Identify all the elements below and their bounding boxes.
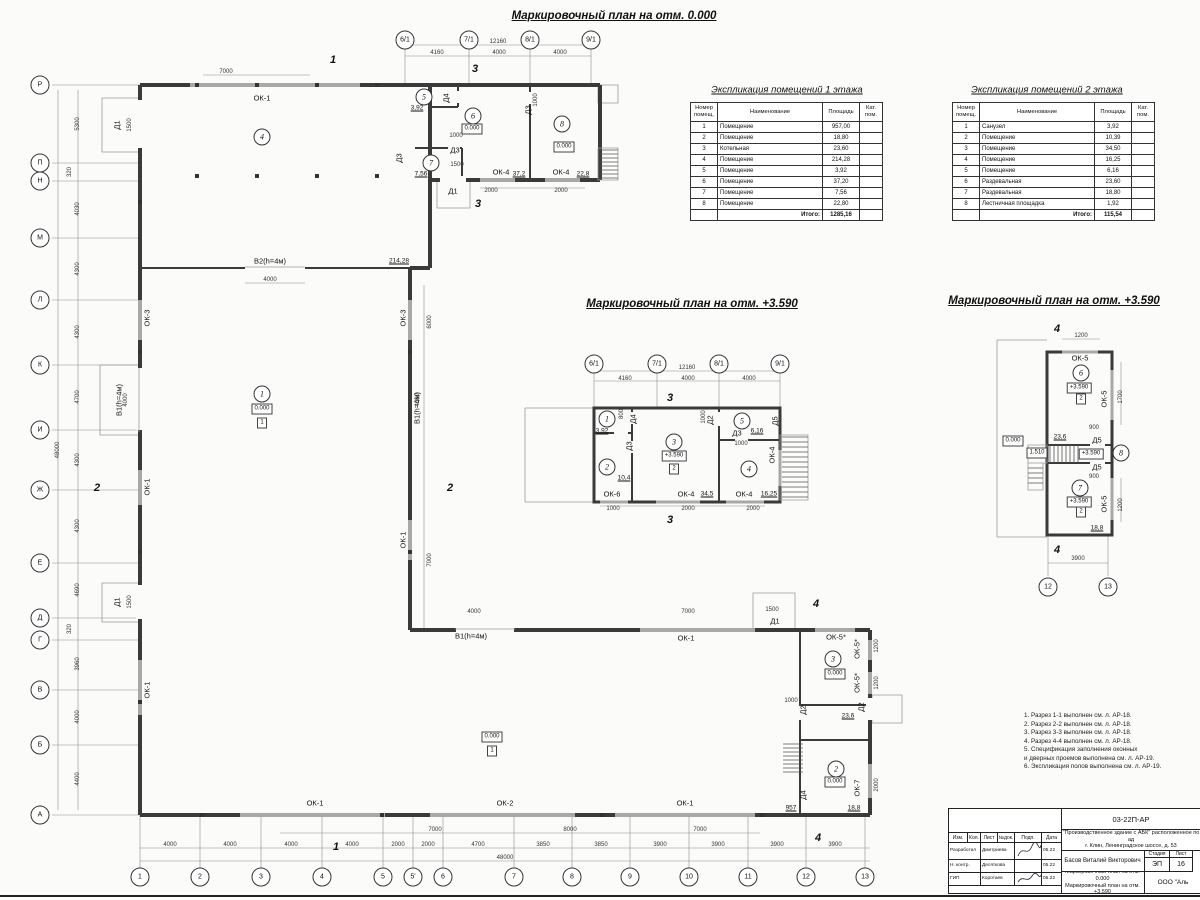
circ-5: 5 xyxy=(734,413,751,430)
dim-4000: 4000 xyxy=(553,50,566,56)
table-cell: 2 xyxy=(691,133,718,144)
table-header: Номер помещ. xyxy=(691,103,718,122)
sq-2: 2 xyxy=(669,464,679,475)
table-cell xyxy=(1132,188,1155,199)
table-cell xyxy=(691,210,718,221)
table-cell xyxy=(1132,155,1155,166)
axis-8: 8 xyxy=(563,868,582,887)
area-18,8: 18,8 xyxy=(848,805,861,812)
lbl-Д1: Д1 xyxy=(113,120,122,129)
axis-6/1: 6/1 xyxy=(396,31,415,50)
dim-48000: 48000 xyxy=(55,442,61,459)
sec-2: 2 xyxy=(94,482,100,494)
area-16,25: 16,25 xyxy=(761,491,777,498)
tb-object-line2: г. Клин, Ленинградское шоссе, д. 53 xyxy=(1085,843,1176,850)
dim-900: 900 xyxy=(1089,425,1099,431)
dim-1500: 1500 xyxy=(765,607,778,613)
table-cell: Помещение xyxy=(718,122,823,133)
dim-4000: 4000 xyxy=(284,842,297,848)
table-cell: 3,92 xyxy=(823,166,860,177)
rooms-table-floor2: Номер помещ.НаименованиеПлощадьКат. пом.… xyxy=(952,102,1155,221)
circ-4: 4 xyxy=(254,129,271,146)
table-cell: Помещение xyxy=(980,133,1095,144)
dim-800: 800 xyxy=(619,409,625,419)
area-957: 957 xyxy=(786,805,797,812)
box-+3.590: +3.590 xyxy=(1067,383,1092,394)
lbl-Д3: Д3 xyxy=(524,105,533,114)
table-cell: Помещение xyxy=(718,133,823,144)
dim-320: 320 xyxy=(67,624,73,634)
axis-8/1: 8/1 xyxy=(521,31,540,50)
box-+3.590: +3.590 xyxy=(1079,449,1104,460)
tb-row-Н. контр.: Н. контр.Десяткова05.22 xyxy=(949,860,1061,873)
sq-2: 2 xyxy=(1076,394,1086,405)
lbl-Д3: Д3 xyxy=(395,153,404,162)
dim-4160: 4160 xyxy=(430,50,443,56)
table-total-row: Итого:1285,16 xyxy=(691,210,883,221)
dim-1200: 1200 xyxy=(1118,498,1124,511)
dim-7000: 7000 xyxy=(219,69,232,75)
lbl-ОК-5: ОК-5 xyxy=(1100,496,1109,513)
area-18,8: 18,8 xyxy=(1091,525,1104,532)
axis-Ж: Ж xyxy=(31,481,50,500)
tb-sheet-value: 16 xyxy=(1170,858,1193,872)
dim-1700: 1700 xyxy=(1118,390,1124,403)
sec-3: 3 xyxy=(472,63,478,75)
area-22,8: 22,8 xyxy=(577,171,590,178)
tb-col-1: Кол. xyxy=(968,833,981,843)
table-cell xyxy=(1132,199,1155,210)
table-cell xyxy=(860,199,883,210)
table-cell: 34,50 xyxy=(1095,144,1132,155)
lbl-Д5: Д5 xyxy=(771,416,780,425)
dim-4400: 4400 xyxy=(75,772,81,785)
lbl-ОК-6: ОК-6 xyxy=(604,490,621,499)
lbl-ОК-1: ОК-1 xyxy=(678,634,695,643)
axis-П: П xyxy=(31,154,50,173)
sq-1: 1 xyxy=(257,418,267,429)
axis-Н: Н xyxy=(31,172,50,191)
area-3,92: 3,92 xyxy=(411,105,424,112)
table-row: 8Лестничная площадка1,92 xyxy=(953,199,1155,210)
dim-4000: 4000 xyxy=(681,376,694,382)
axis-6/1: 6/1 xyxy=(585,355,604,374)
note-item: 2. Разрез 2-2 выполнен см. л. АР-18. xyxy=(1024,721,1200,730)
table-cell: 3 xyxy=(691,144,718,155)
tb-signature xyxy=(1015,860,1042,872)
lbl-Д2: Д2 xyxy=(857,702,866,711)
tb-cell: Дмитриева xyxy=(981,843,1015,859)
table-cell: Помещение xyxy=(718,199,823,210)
table-cell: Помещение xyxy=(718,155,823,166)
dim-4000: 4000 xyxy=(223,842,236,848)
lbl-В2(h=4м): В2(h=4м) xyxy=(254,257,286,266)
dim-1200: 1200 xyxy=(874,676,880,689)
table-cell: Помещение xyxy=(718,188,823,199)
dim-2000: 2000 xyxy=(554,188,567,194)
table2-title: Экспликация помещений 2 этажа xyxy=(971,85,1122,96)
axis-М: М xyxy=(31,229,50,248)
table-cell xyxy=(860,177,883,188)
sec-4: 4 xyxy=(1054,544,1060,556)
dim-2000: 2000 xyxy=(874,778,880,791)
table-row: 5Помещение3,92 xyxy=(691,166,883,177)
table-cell xyxy=(1132,122,1155,133)
table-cell: 18,80 xyxy=(823,133,860,144)
area-6,16: 6,16 xyxy=(751,428,764,435)
axis-В: В xyxy=(31,681,50,700)
lbl-Д4: Д4 xyxy=(799,790,808,799)
table-cell: 1285,16 xyxy=(823,210,860,221)
dim-4160: 4160 xyxy=(618,376,631,382)
box-0.000: 0.000 xyxy=(553,142,574,153)
table-cell: Помещение xyxy=(980,166,1095,177)
area-10,4: 10,4 xyxy=(618,475,631,482)
rooms-table-floor1: Номер помещ.НаименованиеПлощадьКат. пом.… xyxy=(690,102,883,221)
box-0.000: 0.000 xyxy=(481,732,502,743)
lbl-ОК-1: ОК-1 xyxy=(143,682,152,699)
table-row: 2Помещение18,80 xyxy=(691,133,883,144)
table-row: 1Помещение957,00 xyxy=(691,122,883,133)
table-cell xyxy=(1132,144,1155,155)
axis-9: 9 xyxy=(621,868,640,887)
table-cell: 16,25 xyxy=(1095,155,1132,166)
axis-Д: Д xyxy=(31,609,50,628)
axis-К: К xyxy=(31,356,50,375)
dim-7000: 7000 xyxy=(427,553,433,566)
circ-8: 8 xyxy=(554,116,571,133)
axis-3: 3 xyxy=(252,868,271,887)
axis-7/1: 7/1 xyxy=(648,355,667,374)
table-cell xyxy=(860,144,883,155)
tb-cell: Н. контр. xyxy=(949,860,981,872)
table-cell xyxy=(860,210,883,221)
box-0.000: 0.000 xyxy=(251,404,272,415)
tb-cell: Десяткова xyxy=(981,860,1015,872)
tb-doc-title: Маркировочный план на отм. 0.000 Маркиро… xyxy=(1061,872,1145,893)
sec-3: 3 xyxy=(667,392,673,404)
table-cell xyxy=(860,155,883,166)
circ-4: 4 xyxy=(741,461,758,478)
tb-doc-line2: Маркировочный план на отм. +3.590 xyxy=(1061,883,1144,894)
table-cell: 8 xyxy=(691,199,718,210)
circ-2: 2 xyxy=(828,761,845,778)
box-0.000: 0.000 xyxy=(824,777,845,788)
table-cell: 6,16 xyxy=(1095,166,1132,177)
table-cell xyxy=(860,166,883,177)
tb-row-Разработал: РазработалДмитриева05.22 xyxy=(949,843,1061,860)
table-cell: 23,60 xyxy=(823,144,860,155)
table-cell: 7,56 xyxy=(823,188,860,199)
lbl-В1(h=4м): В1(h=4м) xyxy=(455,632,487,641)
dim-5300: 5300 xyxy=(75,117,81,130)
table-cell xyxy=(860,188,883,199)
axis-Б: Б xyxy=(31,736,50,755)
rooms-table: Номер помещ.НаименованиеПлощадьКат. пом.… xyxy=(952,102,1155,221)
dim-7000: 7000 xyxy=(681,609,694,615)
dim-4000: 4000 xyxy=(742,376,755,382)
table-row: 3Котельная23,60 xyxy=(691,144,883,155)
axis-9/1: 9/1 xyxy=(582,31,601,50)
table-cell: 7 xyxy=(691,188,718,199)
table-cell: 1 xyxy=(953,122,980,133)
dim-3900: 3900 xyxy=(770,842,783,848)
table1-title: Экспликация помещений 1 этажа xyxy=(711,85,862,96)
tb-cell: ГИП xyxy=(949,873,981,885)
plan1-title: Маркировочный план на отм. 0.000 xyxy=(512,10,717,22)
circ-7: 7 xyxy=(423,155,440,172)
tb-object-line1: "Производственное здание с АБК" располож… xyxy=(1061,830,1200,843)
tb-doc-code: 03-22П-АР xyxy=(1061,809,1200,830)
dim-4700: 4700 xyxy=(75,390,81,403)
lbl-ОК-1: ОК-1 xyxy=(143,479,152,496)
lbl-ОК-4: ОК-4 xyxy=(493,168,510,177)
dim-3900: 3900 xyxy=(711,842,724,848)
sec-1: 1 xyxy=(330,54,336,66)
dim-48000: 48000 xyxy=(497,855,514,861)
lbl-ОК-1: ОК-1 xyxy=(677,799,694,808)
tb-signature xyxy=(1015,843,1042,859)
lbl-ОК-5*: ОК-5* xyxy=(826,633,846,642)
tb-signature-rows: РазработалДмитриева05.22Н. контр.Десятко… xyxy=(949,843,1061,893)
axis-5: 5 xyxy=(374,868,393,887)
tb-stage-block: Стадия Лист ЭП 16 xyxy=(1145,851,1200,872)
table-cell: Итого: xyxy=(718,210,823,221)
table-cell xyxy=(953,210,980,221)
table-cell: Помещение xyxy=(718,177,823,188)
dim-3900: 3900 xyxy=(653,842,666,848)
axis-5': 5' xyxy=(404,868,423,887)
tb-row-ГИП: ГИПКоротаев05.22 xyxy=(949,873,1061,886)
table-cell xyxy=(860,133,883,144)
area-37,2: 37,2 xyxy=(513,171,526,178)
dim-320: 320 xyxy=(67,167,73,177)
table-cell: Помещение xyxy=(718,166,823,177)
axis-6: 6 xyxy=(434,868,453,887)
lbl-Д3: Д3 xyxy=(732,429,741,438)
table-cell: Раздевальная xyxy=(980,177,1095,188)
tb-columns-header: Изм.Кол.Лист№док.Подп.Дата xyxy=(949,833,1061,843)
tb-cell: 05.22 xyxy=(1042,860,1061,872)
dim-3850: 3850 xyxy=(594,842,607,848)
dim-7000: 7000 xyxy=(428,827,441,833)
area-23,6: 23,6 xyxy=(842,713,855,720)
dim-2000: 2000 xyxy=(421,842,434,848)
dim-8000: 8000 xyxy=(563,827,576,833)
dim-4300: 4300 xyxy=(75,519,81,532)
lbl-Д4: Д4 xyxy=(442,93,451,102)
table-cell: Раздевальная xyxy=(980,188,1095,199)
box-0.000: 0.000 xyxy=(824,669,845,680)
dim-4000: 4000 xyxy=(345,842,358,848)
table-row: 7Раздевальная18,80 xyxy=(953,188,1155,199)
box-+3.590: +3.590 xyxy=(662,451,687,462)
tb-col-2: Лист xyxy=(981,833,998,843)
area-7,56: 7,56 xyxy=(415,171,428,178)
dim-2000: 2000 xyxy=(484,188,497,194)
table-row: 7Помещение7,56 xyxy=(691,188,883,199)
tb-cell: Разработал xyxy=(949,843,981,859)
table-cell: 23,60 xyxy=(1095,177,1132,188)
axis-Л: Л xyxy=(31,291,50,310)
lbl-ОК-7: ОК-7 xyxy=(853,780,862,797)
lbl-ОК-4: ОК-4 xyxy=(768,447,777,464)
lbl-ОК-3: ОК-3 xyxy=(399,310,408,327)
sq-1: 1 xyxy=(487,746,497,757)
circ-6: 6 xyxy=(465,108,482,125)
table-cell: Помещение xyxy=(980,155,1095,166)
table-cell: 2 xyxy=(953,133,980,144)
note-item: 1. Разрез 1-1 выполнен см. л. АР-18. xyxy=(1024,712,1200,721)
dim-6000: 6000 xyxy=(427,315,433,328)
table-cell: 4 xyxy=(691,155,718,166)
lbl-ОК-3: ОК-3 xyxy=(143,310,152,327)
table-row: 4Помещение16,25 xyxy=(953,155,1155,166)
dim-3900: 3900 xyxy=(828,842,841,848)
dim-1000: 1000 xyxy=(784,698,797,704)
table-cell: 4 xyxy=(953,155,980,166)
dim-1500: 1500 xyxy=(127,118,133,131)
circ-2: 2 xyxy=(599,459,616,476)
lbl-ОК-4: ОК-4 xyxy=(736,490,753,499)
table-cell: 3 xyxy=(953,144,980,155)
table-cell: Санузел xyxy=(980,122,1095,133)
lbl-ОК-4: ОК-4 xyxy=(678,490,695,499)
tb-stage-label: Стадия xyxy=(1145,851,1170,858)
sec-4: 4 xyxy=(815,832,821,844)
table-cell xyxy=(1132,166,1155,177)
tb-col-5: Дата xyxy=(1042,833,1061,843)
axis-7: 7 xyxy=(505,868,524,887)
axis-Е: Е xyxy=(31,554,50,573)
lbl-ОК-5*: ОК-5* xyxy=(853,639,862,659)
circ-8: 8 xyxy=(1113,445,1130,462)
dim-1000: 1000 xyxy=(606,506,619,512)
table-row: 2Помещение10,39 xyxy=(953,133,1155,144)
drawing-sheet: РПНМЛКИЖЕДГВБА123455'6789101112136/17/18… xyxy=(0,0,1200,900)
dim-4030: 4030 xyxy=(75,202,81,215)
circ-1: 1 xyxy=(254,386,271,403)
note-item: 3. Разрез 3-3 выполнен см. л. АР-18. xyxy=(1024,729,1200,738)
dim-4300: 4300 xyxy=(75,262,81,275)
lbl-В1(h=4м): В1(h=4м) xyxy=(115,384,124,416)
circ-3: 3 xyxy=(825,651,842,668)
dim-4000: 4000 xyxy=(75,710,81,723)
table-header: Наименование xyxy=(718,103,823,122)
sec-2: 2 xyxy=(447,482,453,494)
dim-2000: 2000 xyxy=(391,842,404,848)
sec-3: 3 xyxy=(475,198,481,210)
dim-2000: 2000 xyxy=(746,506,759,512)
box-0.000: 0.000 xyxy=(1002,436,1023,447)
table-cell: 18,80 xyxy=(1095,188,1132,199)
table-header: Номер помещ. xyxy=(953,103,980,122)
tb-stage-value: ЭП xyxy=(1145,858,1170,872)
tb-cell: 05.22 xyxy=(1042,843,1061,859)
axis-13: 13 xyxy=(856,868,875,887)
lbl-Д1: Д1 xyxy=(448,187,457,196)
axis-9/1: 9/1 xyxy=(771,355,790,374)
dim-4000: 4000 xyxy=(263,277,276,283)
table-cell: Помещение xyxy=(980,144,1095,155)
tb-doc-line1: Маркировочный план на отм. 0.000 xyxy=(1061,872,1144,883)
table-cell xyxy=(1132,210,1155,221)
table-row: 8Помещение22,80 xyxy=(691,199,883,210)
table-row: 5Помещение6,16 xyxy=(953,166,1155,177)
axis-И: И xyxy=(31,421,50,440)
table-cell xyxy=(860,122,883,133)
dim-1200: 1200 xyxy=(874,639,880,652)
table-total-row: Итого:115,54 xyxy=(953,210,1155,221)
dim-1500: 1500 xyxy=(450,162,463,168)
sec-3: 3 xyxy=(667,514,673,526)
dim-4690: 4690 xyxy=(75,583,81,596)
dim-4300: 4300 xyxy=(75,325,81,338)
lbl-ОК-5: ОК-5 xyxy=(1100,391,1109,408)
table-cell: 8 xyxy=(953,199,980,210)
table-cell: 1 xyxy=(691,122,718,133)
dim-4000: 4000 xyxy=(163,842,176,848)
table-row: 1Санузел3,92 xyxy=(953,122,1155,133)
table-cell xyxy=(1132,133,1155,144)
dim-7000: 7000 xyxy=(693,827,706,833)
sec-4: 4 xyxy=(813,598,819,610)
area-23,6: 23,6 xyxy=(1054,434,1067,441)
dim-1200: 1200 xyxy=(1074,333,1087,339)
axis-8/1: 8/1 xyxy=(710,355,729,374)
lbl-Д3: Д3 xyxy=(625,441,634,450)
axis-10: 10 xyxy=(680,868,699,887)
table-cell: Котельная xyxy=(718,144,823,155)
tb-object: "Производственное здание с АБК" располож… xyxy=(1061,830,1200,851)
lbl-Д1: Д1 xyxy=(113,597,122,606)
circ-5: 5 xyxy=(416,89,433,106)
tb-cell: Коротаев xyxy=(981,873,1015,885)
lbl-Д3: Д3 xyxy=(450,146,459,155)
table-cell xyxy=(1132,177,1155,188)
axis-12: 12 xyxy=(797,868,816,887)
table-row: 4Помещение214,28 xyxy=(691,155,883,166)
circ-3: 3 xyxy=(666,434,683,451)
tb-sheet-label: Лист xyxy=(1170,851,1193,858)
lbl-ОК-2: ОК-2 xyxy=(497,799,514,808)
table-header: Кат. пом. xyxy=(1132,103,1155,122)
lbl-ОК-4: ОК-4 xyxy=(553,168,570,177)
area-3,92: 3,92 xyxy=(596,428,609,435)
dim-4000: 4000 xyxy=(123,393,129,406)
lbl-ОК-1: ОК-1 xyxy=(307,799,324,808)
dim-900: 900 xyxy=(1089,474,1099,480)
notes-list: 1. Разрез 1-1 выполнен см. л. АР-18.2. Р… xyxy=(1024,712,1200,772)
axis-Р: Р xyxy=(31,76,50,95)
table-cell: 37,20 xyxy=(823,177,860,188)
table-row: 6Помещение37,20 xyxy=(691,177,883,188)
tb-org: ООО "Аль xyxy=(1145,872,1200,893)
table-cell: 6 xyxy=(953,177,980,188)
dim-4000: 4000 xyxy=(467,609,480,615)
tb-cell: 05.22 xyxy=(1042,873,1061,885)
plan2-title: Маркировочный план на отм. +3.590 xyxy=(586,298,798,310)
tb-col-4: Подп. xyxy=(1015,833,1042,843)
table-cell: 7 xyxy=(953,188,980,199)
lbl-ОК-5: ОК-5 xyxy=(1072,354,1089,363)
area-34,5: 34,5 xyxy=(701,491,714,498)
dim-4700: 4700 xyxy=(471,842,484,848)
sec-1: 1 xyxy=(333,841,339,853)
circ-1: 1 xyxy=(599,411,616,428)
box-0.000: 0.000 xyxy=(461,124,482,135)
tb-signature xyxy=(1015,873,1042,885)
